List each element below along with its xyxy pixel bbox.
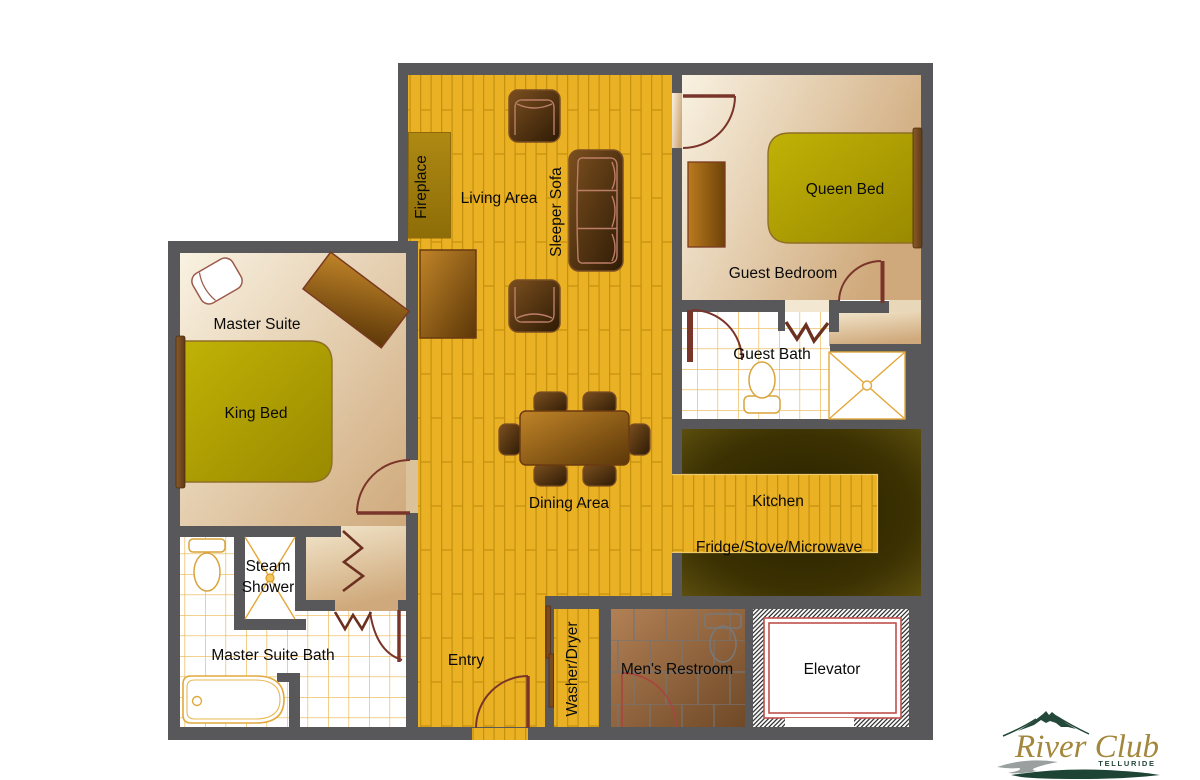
svg-text:Fireplace: Fireplace: [413, 155, 430, 219]
svg-text:Entry: Entry: [448, 652, 484, 669]
svg-text:Shower: Shower: [242, 579, 295, 596]
svg-text:Living Area: Living Area: [461, 190, 538, 207]
svg-text:Sleeper Sofa: Sleeper Sofa: [548, 167, 565, 257]
svg-text:Master Suite Bath: Master Suite Bath: [211, 647, 334, 664]
svg-text:Elevator: Elevator: [804, 661, 861, 678]
svg-text:Fridge/Stove/Microwave: Fridge/Stove/Microwave: [696, 539, 862, 556]
svg-text:Men's Restroom: Men's Restroom: [621, 661, 733, 678]
svg-text:TELLURIDE: TELLURIDE: [1098, 759, 1155, 768]
svg-text:Steam: Steam: [246, 558, 291, 575]
svg-text:Master Suite: Master Suite: [213, 316, 300, 333]
svg-text:King Bed: King Bed: [225, 405, 288, 422]
svg-text:Guest Bedroom: Guest Bedroom: [729, 265, 838, 282]
svg-text:Washer/Dryer: Washer/Dryer: [564, 621, 581, 716]
svg-text:Queen Bed: Queen Bed: [806, 181, 884, 198]
svg-text:Kitchen: Kitchen: [752, 493, 804, 510]
svg-text:Dining Area: Dining Area: [529, 495, 610, 512]
svg-text:Guest Bath: Guest Bath: [733, 346, 811, 363]
